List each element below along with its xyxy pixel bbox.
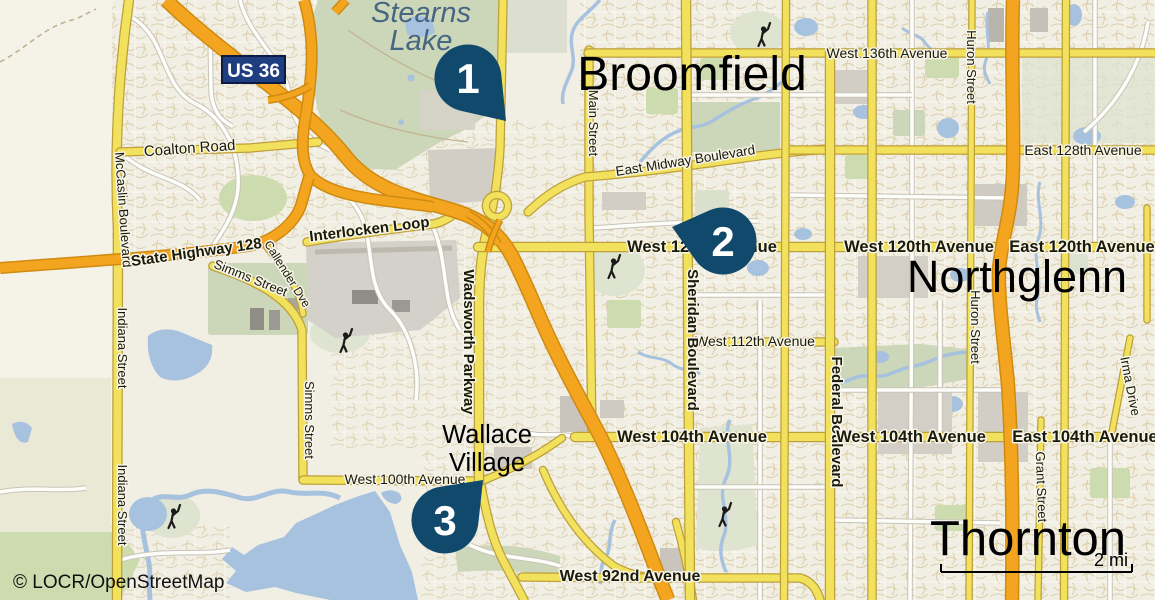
svg-text:© LOCR/OpenStreetMap: © LOCR/OpenStreetMap — [13, 572, 224, 593]
svg-text:West 104th Avenue: West 104th Avenue — [617, 428, 767, 446]
svg-text:Sheridan Boulevard: Sheridan Boulevard — [684, 269, 701, 411]
svg-text:Huron Street: Huron Street — [968, 290, 983, 364]
svg-text:East 128th Avenue: East 128th Avenue — [1024, 142, 1141, 158]
svg-text:Indiana Street: Indiana Street — [115, 308, 130, 389]
svg-text:West 136th Avenue: West 136th Avenue — [827, 45, 948, 61]
svg-text:Lake: Lake — [390, 25, 453, 57]
svg-text:West 92nd Avenue: West 92nd Avenue — [560, 568, 701, 585]
svg-text:Federal Boulevard: Federal Boulevard — [828, 357, 845, 488]
svg-text:2: 2 — [711, 218, 734, 265]
svg-text:West 104th Avenue: West 104th Avenue — [836, 428, 986, 446]
svg-text:Wallace: Wallace — [442, 421, 532, 449]
svg-text:Broomfield: Broomfield — [577, 48, 806, 101]
svg-text:3: 3 — [433, 497, 456, 544]
svg-text:West 120th Avenue: West 120th Avenue — [844, 238, 994, 256]
svg-text:Wadsworth Parkway: Wadsworth Parkway — [460, 269, 477, 415]
svg-text:West 100th Avenue: West 100th Avenue — [345, 471, 466, 487]
svg-text:East 120th Avenue: East 120th Avenue — [1009, 238, 1155, 256]
svg-text:West 112th Avenue: West 112th Avenue — [695, 333, 815, 349]
svg-text:East 104th Avenue: East 104th Avenue — [1012, 428, 1155, 446]
svg-text:Grant Street: Grant Street — [1033, 451, 1050, 523]
svg-text:Indiana Street: Indiana Street — [115, 465, 130, 546]
svg-text:1: 1 — [456, 55, 479, 102]
svg-text:Northglenn: Northglenn — [907, 251, 1127, 302]
svg-text:2 mi: 2 mi — [1094, 550, 1128, 570]
svg-text:Simms Street: Simms Street — [302, 381, 317, 459]
svg-text:Huron Street: Huron Street — [964, 30, 979, 104]
svg-text:Main Street: Main Street — [586, 90, 601, 157]
svg-text:US 36: US 36 — [227, 61, 280, 82]
